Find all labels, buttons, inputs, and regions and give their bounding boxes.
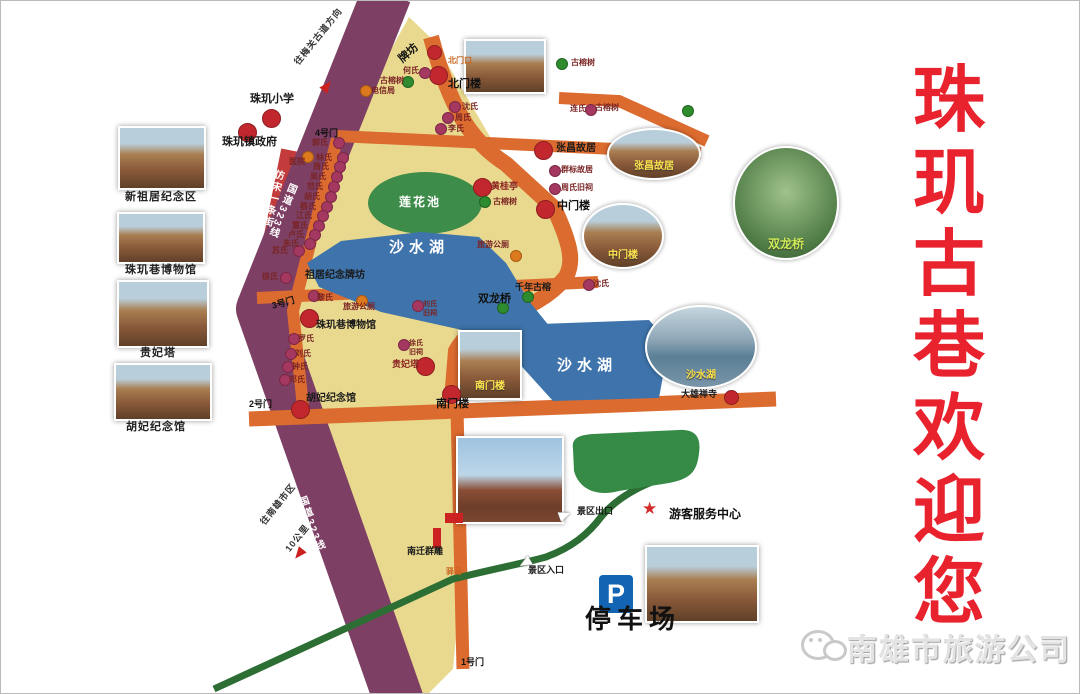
poi-dot-marker xyxy=(449,101,461,113)
map-label: 珠玑巷博物馆 xyxy=(316,321,376,332)
map-label: 古榕树 xyxy=(493,198,517,206)
title-char: 珠 xyxy=(901,59,997,141)
map-label: 千年古榕 xyxy=(515,283,551,292)
map-label: 新祖居纪念区 xyxy=(125,192,197,204)
map-label: 何氏 xyxy=(403,67,419,75)
map-label: 游客服务中心 xyxy=(669,508,741,521)
map-label: 珠玑巷博物馆 xyxy=(125,265,197,277)
map-label: 胡妃纪念馆 xyxy=(306,394,356,405)
map-label: 沈氏 xyxy=(593,280,609,288)
map-label: 黄桂亭 xyxy=(491,182,518,191)
photo-thumbnail xyxy=(117,212,205,264)
map-label: 祖居纪念牌坊 xyxy=(305,271,365,282)
title-char: 古 xyxy=(901,223,997,305)
photo-thumbnail: 双龙桥 xyxy=(733,146,839,260)
map-label: 群标故居 xyxy=(561,166,593,174)
poi-dot-marker xyxy=(280,272,292,284)
map-label: 范氏 xyxy=(307,183,323,191)
map-label: 沙水湖 xyxy=(557,358,617,374)
map-label: 郭氏 xyxy=(312,139,328,147)
map-title: 珠玑古巷欢迎您 xyxy=(901,59,997,633)
map-label: 贵妃塔 xyxy=(392,360,419,369)
service-center-star-icon: ★ xyxy=(642,500,657,517)
map-label: 江氏 xyxy=(296,212,312,220)
poi-dot-marker xyxy=(333,137,345,149)
map-label: 古榕树 xyxy=(595,104,619,112)
map-label: 莲花池 xyxy=(399,196,441,209)
map-label: 大雄禅寺 xyxy=(681,390,717,399)
map-label: 刘氏 xyxy=(295,350,311,358)
photo-caption: 双龙桥 xyxy=(735,235,837,252)
poi-dot-marker xyxy=(435,123,447,135)
company-name: 南雄市旅游公司 xyxy=(847,625,1071,669)
map-label: 沈氏 xyxy=(462,103,478,111)
map-label: 古榕树 xyxy=(380,77,404,85)
map-label: 徐氏 xyxy=(262,273,278,281)
poi-dot-marker xyxy=(479,196,491,208)
photo-thumbnail: 南门楼 xyxy=(458,330,522,400)
poi-dot-marker xyxy=(549,165,561,177)
wechat-icon xyxy=(799,626,847,668)
photo-caption: 沙水湖 xyxy=(647,366,755,381)
photo-thumbnail: 沙水湖 xyxy=(645,305,757,389)
map-label: 李氏 xyxy=(448,125,464,133)
photo-thumbnail xyxy=(117,280,209,348)
poi-dot-marker xyxy=(724,390,739,405)
poi-dot-marker xyxy=(473,178,492,197)
map-label: 刘氏 xyxy=(423,301,437,308)
poi-dot-marker xyxy=(304,238,316,250)
poi-dot-marker xyxy=(522,291,534,303)
map-label: 景区出口 xyxy=(577,507,613,516)
photo-thumbnail xyxy=(118,126,206,190)
poi-dot-marker xyxy=(442,112,454,124)
poi-dot-marker xyxy=(510,250,522,262)
poi-dot-marker xyxy=(419,67,431,79)
photo-caption: 张昌故居 xyxy=(609,157,699,172)
photo-thumbnail: 中门楼 xyxy=(582,203,664,269)
photo-thumbnail xyxy=(456,436,564,524)
map-label: 罗氏 xyxy=(298,335,314,343)
map-label: 珠玑小学 xyxy=(250,94,294,106)
map-label: 中门楼 xyxy=(557,201,590,213)
photo-thumbnail: 张昌故居 xyxy=(607,128,701,180)
photo-caption: 中门楼 xyxy=(584,246,662,261)
map-label: 黎氏 xyxy=(317,294,333,302)
poi-dot-marker xyxy=(556,58,568,70)
photo-thumbnail xyxy=(114,363,212,421)
map-label: 古榕树 xyxy=(571,59,595,67)
poi-dot-marker xyxy=(549,183,561,195)
poi-dot-marker xyxy=(262,109,281,128)
map-label: 珠玑镇政府 xyxy=(222,137,277,149)
photo-caption: 南门楼 xyxy=(460,377,520,392)
map-label: 旅游公厕 xyxy=(343,303,375,311)
parking-label: 停车场 xyxy=(585,599,681,636)
footer: 南雄市旅游公司 xyxy=(799,625,1071,669)
map-label: 周氏 xyxy=(455,114,471,122)
title-char: 玑 xyxy=(901,141,997,223)
map-label: 旧祠 xyxy=(423,310,437,317)
map-label: 张昌故居 xyxy=(556,144,596,155)
poi-dot-marker xyxy=(534,141,553,160)
map-label: 钟氏 xyxy=(292,363,308,371)
poi-dot-marker xyxy=(536,200,555,219)
title-char: 您 xyxy=(901,551,997,633)
fishing-pond xyxy=(573,430,700,493)
map-label: 旧祠 xyxy=(409,349,423,356)
map-label: 北门口 xyxy=(448,57,472,65)
map-label: 胡妃纪念馆 xyxy=(126,422,186,434)
map-label: 驿马 xyxy=(446,568,462,576)
poi-dot-marker xyxy=(427,45,442,60)
map-label: 双龙桥 xyxy=(478,294,511,306)
title-char: 巷 xyxy=(901,305,997,387)
map-label: 沙水湖 xyxy=(389,240,449,256)
map-label: 吴氏 xyxy=(310,173,326,181)
map-label: 周氏旧祠 xyxy=(561,184,593,192)
landmark-bar-marker xyxy=(445,513,463,523)
map-label: 徐氏 xyxy=(409,340,423,347)
map-label: 苏氏 xyxy=(272,247,288,255)
map-label: 景区入口 xyxy=(528,566,564,575)
map-label: 电信局 xyxy=(371,87,395,95)
map-label: 周氏 xyxy=(313,163,329,171)
map-label: 1号门 xyxy=(461,658,484,667)
map-label: 北门楼 xyxy=(448,79,481,91)
landmark-bar-marker xyxy=(433,528,441,548)
poi-dot-marker xyxy=(682,105,694,117)
map-label: 贵妃塔 xyxy=(140,348,176,360)
map-label: 胡氏 xyxy=(304,193,320,201)
map-label: 医院 xyxy=(289,158,305,166)
map-label: 南迁群雕 xyxy=(407,547,443,556)
map-label: 连氏 xyxy=(570,105,586,113)
poi-dot-marker xyxy=(429,66,448,85)
map-label: 2号门 xyxy=(249,400,272,409)
map-label: 旅游公厕 xyxy=(477,241,509,249)
map-label: 邓氏 xyxy=(289,376,305,384)
map-label: 南门楼 xyxy=(436,399,469,411)
tourist-map: 张昌故居中门楼双龙桥沙水湖南门楼★珠玑小学珠玑镇政府新祖居纪念区珠玑巷博物馆贵妃… xyxy=(0,0,1080,694)
title-char: 欢 xyxy=(901,387,997,469)
title-char: 迎 xyxy=(901,469,997,551)
